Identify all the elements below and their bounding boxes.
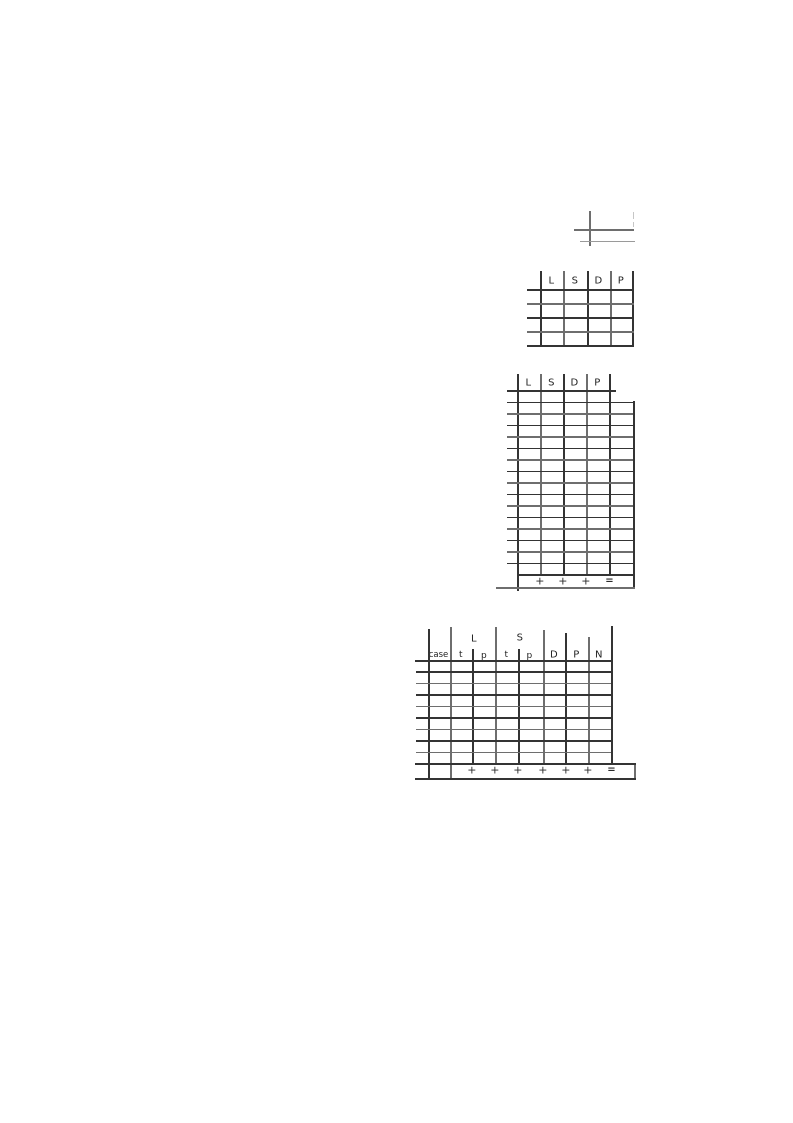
- grid-line: [540, 271, 542, 347]
- grid-line: [416, 729, 611, 731]
- grid-line: [527, 331, 634, 333]
- grid-line: [507, 402, 633, 404]
- column-header-l: L: [549, 276, 555, 287]
- grid-line: [633, 401, 635, 587]
- plus-operator: +: [583, 764, 593, 777]
- grid-line: [507, 425, 633, 427]
- grid-line: [563, 271, 565, 347]
- grid-line: [416, 752, 611, 754]
- grid-line: [527, 303, 634, 305]
- grid-line: [416, 740, 611, 742]
- grid-line: [428, 629, 430, 778]
- grid-line: [416, 683, 611, 685]
- grid-line: [507, 540, 633, 542]
- column-header-t: t: [459, 650, 463, 660]
- grid-line: [507, 390, 616, 392]
- grid-line: [507, 494, 633, 496]
- grid-line: [580, 241, 635, 242]
- column-header-p: P: [594, 378, 600, 389]
- grid-line: [507, 563, 633, 565]
- grid-line: [507, 459, 633, 461]
- grid-line: [415, 660, 611, 662]
- grid-line: [416, 706, 611, 708]
- grid-line: [507, 436, 633, 438]
- column-header-d: D: [594, 276, 602, 287]
- grid-line: [611, 626, 613, 763]
- grid-line: [540, 374, 542, 574]
- grid-line: [588, 637, 590, 763]
- grid-line: [565, 633, 567, 763]
- column-header-l: L: [526, 378, 532, 389]
- plus-operator: +: [561, 764, 571, 777]
- grid-line: [507, 448, 633, 450]
- column-header-p: P: [618, 276, 624, 287]
- grid-line: [574, 229, 634, 231]
- grid-line: [517, 574, 635, 576]
- group-header-s: S: [517, 633, 524, 644]
- grid-line: [507, 413, 633, 415]
- column-header-s: S: [572, 276, 579, 287]
- grid-line: [527, 289, 634, 291]
- plus-operator: +: [467, 764, 477, 777]
- plus-operator: +: [535, 575, 545, 588]
- column-header-d: D: [550, 650, 558, 661]
- column-header-s: S: [548, 378, 555, 389]
- plus-operator: +: [513, 764, 523, 777]
- grid-line: [610, 271, 612, 347]
- equals-operator: =: [607, 765, 614, 776]
- column-header-p2: P: [573, 650, 579, 661]
- group-header-l: L: [471, 634, 477, 645]
- grid-line: [507, 471, 633, 473]
- grid-line: [416, 694, 611, 696]
- grid-line: [632, 271, 634, 347]
- grid-line: [609, 374, 611, 574]
- grid-line: [507, 517, 633, 519]
- column-header-n: N: [595, 650, 603, 661]
- grid-line: [415, 763, 636, 765]
- grid-line: [633, 222, 634, 227]
- column-header-d: D: [570, 378, 578, 389]
- grid-line: [586, 374, 588, 574]
- plus-operator: +: [581, 575, 591, 588]
- equals-operator: =: [605, 575, 612, 586]
- grid-line: [507, 505, 633, 507]
- grid-line: [507, 528, 633, 530]
- grid-line: [416, 671, 611, 673]
- grid-line: [507, 482, 633, 484]
- column-header-t: t: [505, 650, 509, 660]
- document-page: L S D P L S D P + + + = L S case t p t p…: [0, 0, 793, 1123]
- grid-line: [507, 551, 633, 553]
- grid-line: [633, 212, 634, 219]
- grid-line: [563, 374, 565, 574]
- grid-line: [415, 778, 636, 780]
- plus-operator: +: [538, 764, 548, 777]
- plus-operator: +: [558, 575, 568, 588]
- grid-line: [416, 717, 611, 719]
- plus-operator: +: [490, 764, 500, 777]
- grid-line: [527, 345, 634, 347]
- grid-line: [527, 317, 634, 319]
- grid-line: [496, 587, 635, 589]
- grid-line: [587, 271, 589, 347]
- column-header-case: case: [429, 650, 449, 660]
- grid-line: [543, 630, 545, 763]
- grid-line: [450, 627, 452, 778]
- grid-line: [634, 763, 636, 778]
